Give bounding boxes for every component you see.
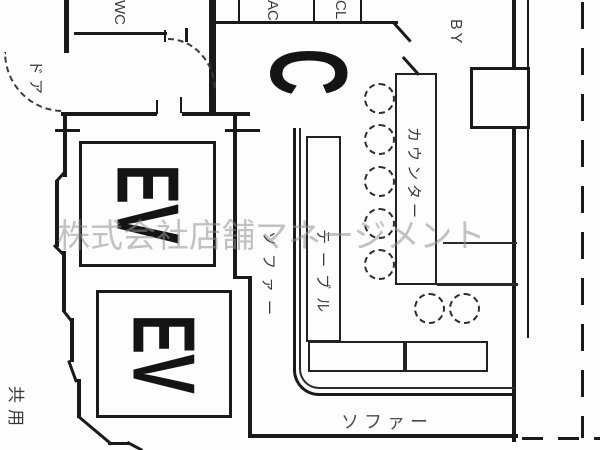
- closet-divider-1: [238, 0, 240, 22]
- wall-top-left: [64, 0, 69, 53]
- closet-divider-2: [313, 0, 315, 23]
- common-area-label: 共用: [7, 386, 24, 432]
- balcony-dashed-line-bottom: [522, 437, 600, 440]
- ac-label: AC: [265, 0, 280, 21]
- closet-divider-3: [360, 0, 362, 23]
- hall-door-jamb-right: [180, 97, 182, 113]
- wall-left-1: [63, 113, 67, 177]
- kitchen-fixture-box: [470, 67, 530, 129]
- wall-hall-top-left: [61, 112, 157, 116]
- wc-door-jamb-left: [164, 30, 166, 42]
- watermark-text: 株式会社店舗マネージメント: [57, 209, 485, 257]
- table-bottom-box-2: [405, 341, 488, 372]
- zone-letter-wrap: C: [268, 44, 348, 100]
- wall-left-3: [62, 251, 66, 312]
- elevator-lower-label: EV: [120, 314, 208, 394]
- cl-label: CL: [333, 0, 348, 19]
- balcony-door-leaf: [393, 22, 412, 43]
- counter-label: カウンター: [406, 127, 421, 222]
- ev-shaft-stub-left: [55, 129, 80, 132]
- wall-closets-bottom: [216, 21, 398, 24]
- wall-left-4: [70, 318, 74, 362]
- door-label: ドア: [28, 60, 43, 98]
- wall-right-inner: [527, 0, 529, 338]
- wall-hall-top-right: [182, 112, 250, 116]
- zone-letter: C: [253, 48, 362, 95]
- wall-mid-lower: [248, 276, 252, 437]
- floor-plan: EV EV C WC AC CL BY ドア カウンター テーブル ソファー 共…: [0, 0, 600, 450]
- wc-door-jamb-right: [185, 28, 188, 42]
- elevator-lower-box: EV: [96, 290, 232, 418]
- ev-shaft-stub-right: [225, 129, 260, 132]
- sofa-bottom-label: ソファー: [341, 408, 433, 434]
- wc-label: WC: [112, 0, 127, 25]
- hall-door-jamb-left: [156, 100, 158, 114]
- wall-bottom: [248, 434, 518, 438]
- wall-left-diag-bottom: [77, 415, 113, 446]
- wall-wc-right: [209, 0, 216, 114]
- wall-left-5: [77, 379, 81, 418]
- balcony-dashed-line-vertical: [581, 2, 584, 438]
- wall-bottom-left-diag: [127, 441, 143, 450]
- table-bottom-box-1: [308, 341, 405, 372]
- wall-wc-bottom: [74, 32, 167, 35]
- balcony-label: BY: [447, 19, 463, 46]
